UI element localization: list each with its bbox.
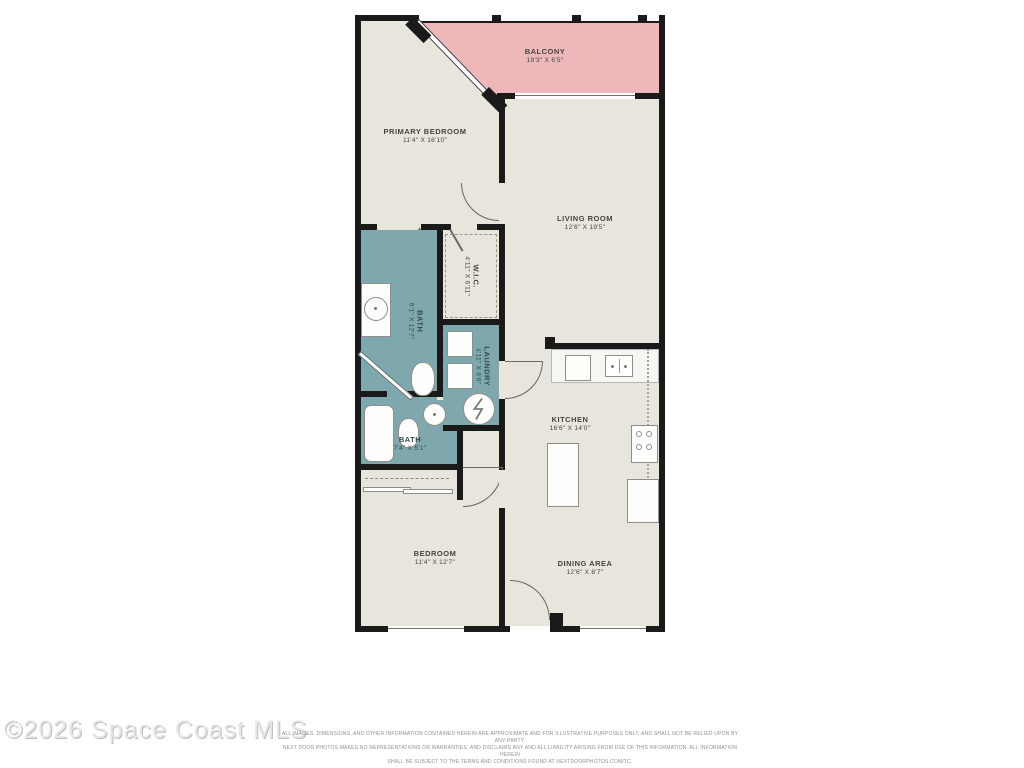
- sink-drain: [624, 365, 627, 368]
- wall-segment: [499, 224, 505, 470]
- wall-segment: [443, 425, 505, 431]
- door-opening: [451, 224, 477, 230]
- railing-post: [492, 15, 501, 21]
- room-label-second-bath: BATH 7'4" X 5'1": [370, 435, 450, 454]
- burner: [636, 444, 642, 450]
- wall-segment: [437, 319, 505, 325]
- room-label-laundry: LAUNDRY 4'11" X 8'0": [473, 326, 492, 406]
- kitchen-sink: [605, 355, 633, 377]
- door-opening: [499, 470, 505, 508]
- wall-stub: [545, 337, 555, 349]
- room-label-wic: W.I.C. 4'11" X 6'11": [462, 236, 481, 316]
- wall-stub: [550, 613, 563, 626]
- door-arc: [463, 467, 503, 507]
- door-leaf: [463, 467, 503, 468]
- door-arc: [461, 183, 499, 221]
- room-label-living-room: LIVING ROOM 12'6" X 19'5": [535, 214, 635, 233]
- room-label-dining-area: DINING AREA 12'6" X 8'7": [535, 559, 635, 578]
- window: [580, 626, 646, 632]
- floor-plan: BALCONY 19'3" X 6'5" PRIMARY BEDROOM 11'…: [355, 15, 665, 632]
- door-leaf: [505, 361, 543, 362]
- dishwasher: [565, 355, 591, 381]
- burner: [636, 431, 642, 437]
- dryer: [447, 363, 473, 389]
- sliding-door: [403, 489, 453, 494]
- refrigerator: [627, 479, 659, 523]
- room-label-kitchen: KITCHEN 16'6" X 14'0": [520, 415, 620, 434]
- room-label-primary-bedroom: PRIMARY BEDROOM 11'4" X 16'10": [375, 127, 475, 146]
- washer: [447, 331, 473, 357]
- wall-segment: [499, 93, 505, 183]
- sliding-glass-door: [515, 93, 635, 99]
- wall-segment: [361, 464, 457, 470]
- balcony-railing: [419, 15, 659, 23]
- disclaimer-line: NEXT DOOR PHOTOS MAKES NO REPRESENTATION…: [280, 745, 740, 759]
- disclaimer-line: ALL IMAGES, DIMENSIONS, AND OTHER INFORM…: [280, 731, 740, 745]
- disclaimer-line: SHALL BE SUBJECT TO THE TERMS AND CONDIT…: [280, 759, 740, 766]
- door-arc: [505, 361, 543, 399]
- floor-plan-page: BALCONY 19'3" X 6'5" PRIMARY BEDROOM 11'…: [0, 0, 1024, 768]
- burner: [646, 431, 652, 437]
- railing-post: [638, 15, 647, 21]
- burner: [646, 444, 652, 450]
- closet-rail: [365, 478, 449, 479]
- sink-drain: [611, 365, 614, 368]
- room-label-balcony: BALCONY 19'3" X 6'5": [485, 47, 605, 66]
- mls-watermark: ©2026 Space Coast MLS: [4, 716, 307, 745]
- disclaimer-text: ALL IMAGES, DIMENSIONS, AND OTHER INFORM…: [280, 731, 740, 766]
- room-label-bedroom: BEDROOM 11'4" X 12'7": [385, 549, 485, 568]
- sink-drain: [433, 413, 436, 416]
- toilet: [411, 362, 435, 396]
- window: [388, 626, 464, 632]
- entry-opening: [510, 626, 550, 632]
- sink-drain: [374, 307, 377, 310]
- wall-segment: [437, 230, 443, 397]
- room-label-primary-bath: BATH 6'1" X 12'7": [406, 281, 425, 361]
- kitchen-island: [547, 443, 579, 507]
- entry-door-arc: [510, 580, 550, 620]
- stove: [631, 425, 658, 463]
- railing-post: [572, 15, 581, 21]
